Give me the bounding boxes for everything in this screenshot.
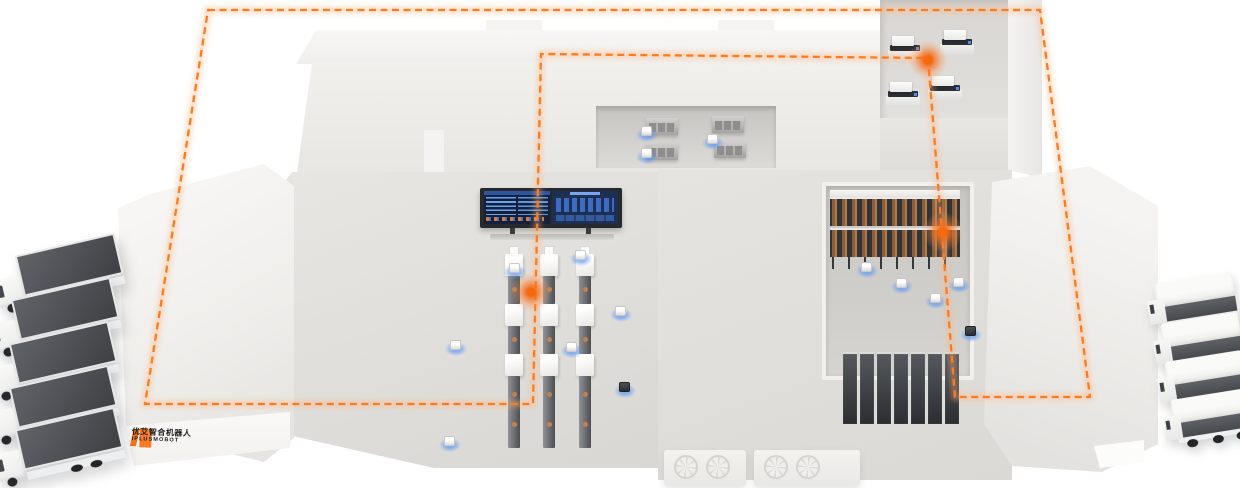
conveyor-roller — [547, 337, 552, 342]
agv-robot — [575, 250, 587, 262]
machine-base — [940, 44, 974, 55]
agv-robot — [566, 342, 578, 354]
vent-block — [664, 450, 746, 486]
processing-machine — [884, 82, 924, 112]
agv-body — [566, 342, 577, 352]
agv-body — [896, 278, 907, 288]
factory-isometric-scene: 优艾智合机器人 IPLUSMOBOT — [0, 0, 1240, 488]
fan-vent-icon — [674, 455, 698, 479]
storage-rack-unit — [928, 352, 942, 424]
machine-base — [886, 96, 920, 107]
truck-wheel — [90, 459, 103, 469]
agv-robot — [641, 148, 653, 160]
vent-block — [754, 450, 860, 486]
conveyor-roller — [583, 392, 588, 397]
agv-robot — [896, 278, 908, 290]
machine-head — [892, 36, 914, 46]
machine-head — [932, 76, 954, 86]
fan-vent-icon — [796, 455, 820, 479]
storage-rack-unit — [877, 352, 891, 424]
machine-status-led — [914, 93, 917, 96]
agv-body — [641, 126, 652, 136]
storage-rack-unit — [911, 352, 925, 424]
agv-robot — [965, 326, 977, 338]
agv-body — [619, 382, 630, 392]
agv-body — [509, 263, 520, 273]
agv-body — [707, 134, 718, 144]
fan-vent-icon — [764, 455, 788, 479]
conveyor-segment — [508, 326, 520, 354]
conveyor-segment — [543, 376, 555, 448]
conveyor-segment — [579, 276, 591, 304]
processing-machine — [938, 30, 978, 60]
agv-robot — [861, 262, 873, 274]
machine-station — [540, 304, 558, 326]
machine-base — [928, 90, 962, 101]
machine-station — [576, 304, 594, 326]
conveyor-roller — [512, 392, 517, 397]
truck-wheel — [1187, 438, 1199, 448]
agv-robot — [619, 382, 631, 394]
agv-robot — [509, 263, 521, 275]
machine-status-led — [956, 87, 959, 90]
processing-machine — [886, 36, 926, 66]
storage-rack-unit — [860, 352, 874, 424]
storage-rack-unit — [945, 352, 959, 424]
conveyor-segment — [508, 376, 520, 448]
truck-wheel — [70, 463, 83, 473]
storage-rack-unit — [843, 352, 857, 424]
processing-machine — [926, 76, 966, 106]
conveyor-roller — [512, 287, 517, 292]
machine-station — [540, 354, 558, 376]
machine-conveyor-line — [539, 246, 559, 450]
agv-body — [930, 293, 941, 303]
machine-station — [505, 304, 523, 326]
agv-body — [615, 306, 626, 316]
machine-station — [540, 254, 558, 276]
machine-status-led — [916, 47, 919, 50]
agv-robot — [707, 134, 719, 146]
scene-objects-layer — [0, 0, 1240, 488]
conveyor-roller — [512, 422, 517, 427]
agv-body — [861, 262, 872, 272]
equipment-cabinet — [712, 116, 744, 133]
conveyor-roller — [547, 287, 552, 292]
agv-body — [575, 250, 586, 260]
machine-head — [890, 82, 912, 92]
fan-vent-icon — [706, 455, 730, 479]
conveyor-roller — [512, 337, 517, 342]
agv-robot — [444, 436, 456, 448]
conveyor-segment — [543, 326, 555, 354]
agv-robot — [641, 126, 653, 138]
conveyor-roller — [583, 337, 588, 342]
conveyor-segment — [508, 276, 520, 304]
storage-rack-unit — [894, 352, 908, 424]
machine-station — [576, 354, 594, 376]
conveyor-segment — [543, 276, 555, 304]
conveyor-roller — [547, 392, 552, 397]
agv-robot — [615, 306, 627, 318]
agv-body — [641, 148, 652, 158]
machine-base — [888, 50, 922, 61]
cabinet-panel — [715, 121, 741, 130]
machine-station — [505, 354, 523, 376]
agv-body — [444, 436, 455, 446]
agv-robot — [450, 340, 462, 352]
truck-wheel — [1212, 434, 1224, 444]
agv-body — [450, 340, 461, 350]
agv-body — [965, 326, 976, 336]
machine-status-led — [968, 41, 971, 44]
agv-body — [953, 277, 964, 287]
conveyor-roller — [583, 287, 588, 292]
machine-head — [944, 30, 966, 40]
conveyor-roller — [547, 422, 552, 427]
conveyor-roller — [583, 422, 588, 427]
agv-robot — [953, 277, 965, 289]
conveyor-segment — [579, 376, 591, 448]
agv-robot — [930, 293, 942, 305]
